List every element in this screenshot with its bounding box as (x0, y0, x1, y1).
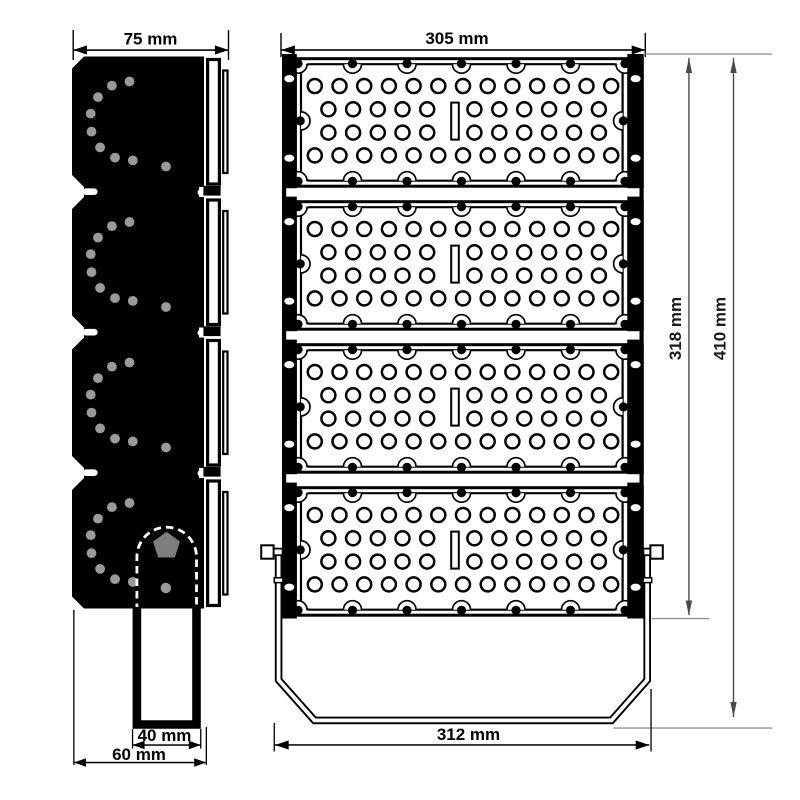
svg-text:60 mm: 60 mm (112, 745, 166, 764)
svg-text:305 mm: 305 mm (425, 29, 488, 48)
svg-text:410 mm: 410 mm (711, 297, 730, 360)
svg-text:312 mm: 312 mm (437, 725, 500, 744)
svg-text:40 mm: 40 mm (138, 726, 192, 745)
svg-text:318 mm: 318 mm (666, 297, 685, 360)
svg-text:75 mm: 75 mm (124, 30, 178, 49)
